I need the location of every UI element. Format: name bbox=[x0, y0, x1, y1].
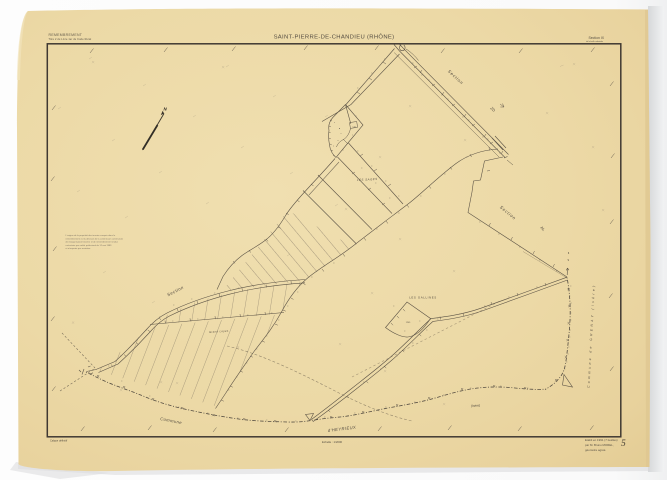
svg-text:géomètre agréé.: géomètre agréé. bbox=[585, 448, 606, 452]
svg-text:SAINT-PIERRE-DE-CHANDIEU (RHÔN: SAINT-PIERRE-DE-CHANDIEU (RHÔNE) bbox=[274, 34, 395, 41]
svg-text:exécutoire par arrêté préfecto: exécutoire par arrêté préfectoral du 12 … bbox=[66, 244, 113, 247]
svg-text:de réorganisation foncière et: de réorganisation foncière et de remembr… bbox=[66, 241, 119, 244]
svg-text:5: 5 bbox=[621, 439, 626, 449]
svg-text:remembrement est la décision d: remembrement est la décision de la commi… bbox=[66, 237, 124, 240]
svg-text:par M. Bruno MOREL,: par M. Bruno MOREL, bbox=[585, 443, 614, 447]
svg-text:Titre 2 du Livre 1er du Code R: Titre 2 du Livre 1er du Code Rural bbox=[49, 38, 92, 41]
svg-text:L'origine de la propriété des: L'origine de la propriété des terrains c… bbox=[66, 234, 116, 237]
svg-text:de la feuille cadastrale: de la feuille cadastrale bbox=[586, 40, 603, 43]
svg-text:Echelle : 1/2000: Echelle : 1/2000 bbox=[322, 440, 343, 444]
svg-text:et n'emporte pas mutation.: et n'emporte pas mutation. bbox=[66, 247, 92, 250]
svg-text:Etabli en 1991 (7 feuilles): Etabli en 1991 (7 feuilles) bbox=[585, 438, 618, 442]
svg-text:Cim: Cim bbox=[353, 126, 357, 128]
svg-text:Calque définitif: Calque définitif bbox=[50, 439, 67, 443]
svg-text:(Isère): (Isère) bbox=[471, 403, 480, 408]
svg-text:LES GALLINES: LES GALLINES bbox=[409, 296, 437, 300]
svg-text:Section IX: Section IX bbox=[589, 36, 605, 40]
svg-text:REMEMBREMENT: REMEMBREMENT bbox=[49, 33, 83, 37]
